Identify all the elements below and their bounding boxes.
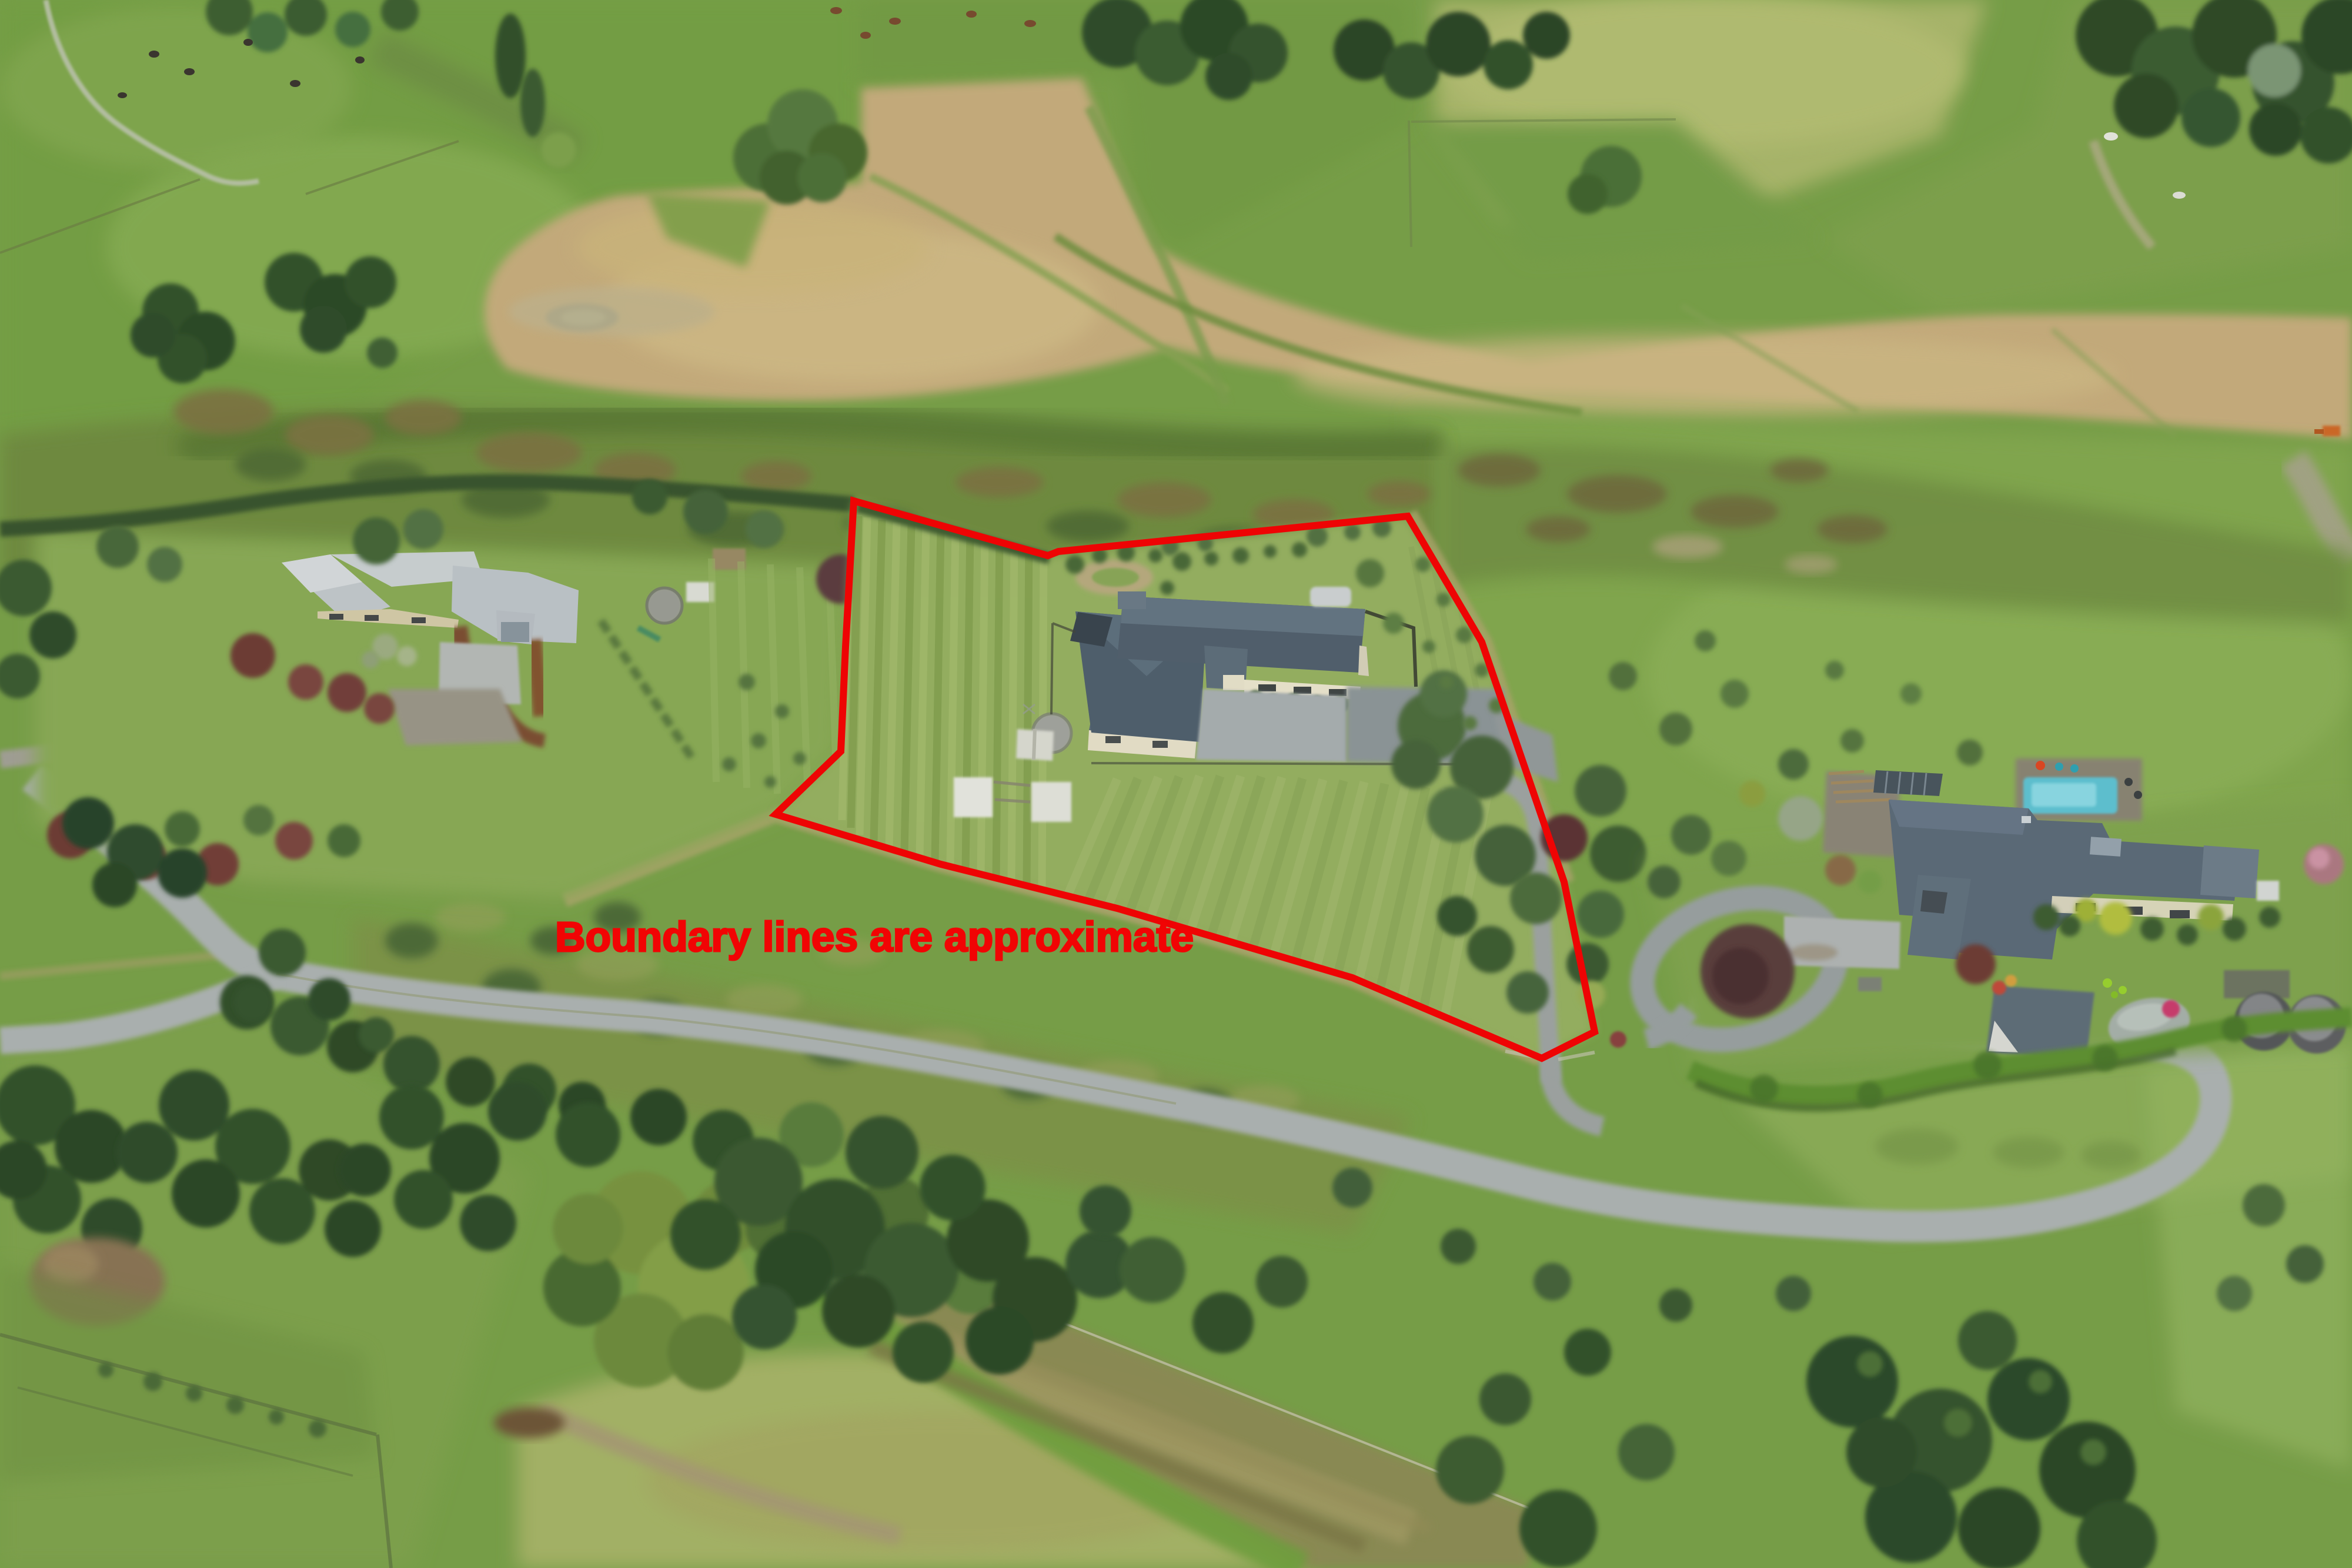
svg-text:Boundary lines are approximate: Boundary lines are approximate (555, 914, 1194, 961)
